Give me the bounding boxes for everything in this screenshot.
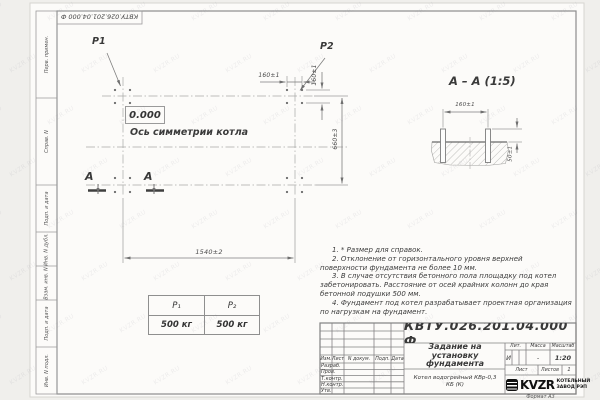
scale-value: 1:20 [550,350,576,365]
dim-bolt-spacing-v: 160±1 [312,58,318,92]
note-4: 4. Фундамент под котел разрабатывает про… [320,299,572,317]
section-dim-protrusion: 50±1 [508,137,514,171]
document-title: Задание на установку фундамента [420,343,490,369]
col-izm: Изм. [320,355,332,363]
top-designation-stamp: КВТУ.026.201.04.000 Ф [57,13,142,19]
col-list: Лист [332,355,344,363]
margin-label-inv-dubl: Инв. N дубл. [42,233,51,267]
section-letter-right: А [144,171,153,182]
company-line2: ЗАВОД РЭП [557,385,591,390]
title-block-designation: КВТУ.026.201.04.000 Ф [404,323,576,343]
margin-label-inv-podl: Инв. N подл. [42,347,51,394]
col-podp: Подп. [374,355,391,363]
load-table-header-p2: Р₂ [205,296,259,316]
margin-label-vzam-inv: Взам. инв. N [42,267,51,301]
col-data: Дата [391,355,404,363]
load-table: Р₁ Р₂ 500 кг 500 кг [148,295,260,335]
section-letter-left: А [85,171,94,182]
section-view-title: А – А (1:5) [449,76,516,88]
sheet-label: Лист [505,365,538,375]
company-logo: KVZR КОТЕЛЬНЫЙ ЗАВОД РЭП [506,376,575,393]
drawing-sheet: КВТУ.026.201.04.000 Ф Перв. примен. Спра… [0,0,600,400]
mass-header: Масса [526,343,550,350]
load-table-value-p2: 500 кг [205,316,259,334]
note-2: 2. Отклонение от горизонтального уровня … [320,255,572,273]
scale-header: Масштаб [550,343,576,350]
anchor-bolt-right [486,129,491,163]
margin-label-perv-primen: Перв. примен. [42,11,51,98]
load-point-label-p2: P2 [320,42,334,52]
boiler-axis-label: Ось симметрии котла [130,128,248,138]
sheets-label: Листов [538,365,562,375]
kvzr-wave-icon [506,379,518,391]
dim-foundation-width: 660±3 [333,119,339,159]
company-name: КОТЕЛЬНЫЙ ЗАВОД РЭП [557,379,591,389]
dim-bolt-spacing-h: 160±1 [252,73,286,79]
sheets-value: 1 [562,365,576,375]
load-table-header-p1: Р₁ [149,296,205,316]
margin-label-podp-data-2: Подп. и дата [42,300,51,347]
technical-notes: 1. * Размер для справок. 2. Отклонение о… [320,246,572,316]
load-table-value-p1: 500 кг [149,316,205,334]
section-dim-bolt-spacing: 160±1 [448,103,482,109]
format-label: Формат А3 [505,394,576,400]
row-utv: Утв. [321,388,344,394]
company-line1: КОТЕЛЬНЫЙ [557,379,591,384]
note-1: 1. * Размер для справок. [320,246,572,255]
kvzr-logo-text: KVZR [520,378,555,392]
mass-value: - [526,350,550,365]
load-point-label-p1: P1 [92,37,106,47]
product-name: Котел водогрейный КВр-0,3 КБ (К) [412,369,498,394]
lit-header: Лит. [505,343,526,350]
anchor-bolt-left [441,129,446,163]
col-ndokum: N докум. [344,355,374,363]
lit-value: И [505,350,512,365]
note-3: 3. В случае отсутствия бетонного пола пл… [320,272,572,298]
margin-label-podp-data-1: Подп. и дата [42,185,51,232]
margin-label-sprav-n: Справ. N [42,98,51,185]
level-mark: 0.000 [125,106,165,124]
dim-foundation-length: 1540±2 [174,249,244,256]
